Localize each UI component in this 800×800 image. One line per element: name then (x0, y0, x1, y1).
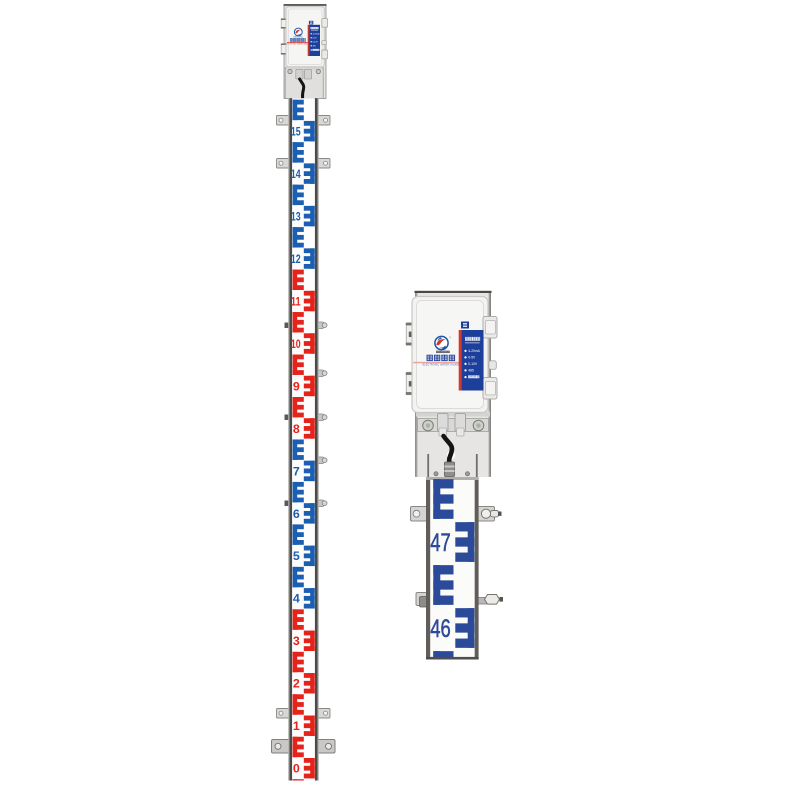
svg-text:0-10V: 0-10V (313, 42, 319, 44)
svg-text:5: 5 (293, 549, 300, 563)
svg-text:7: 7 (293, 464, 300, 478)
svg-text:ELECTRONIC WATER GAUGE: ELECTRONIC WATER GAUGE (285, 43, 311, 46)
svg-text:1: 1 (293, 719, 300, 733)
svg-text:4-20mA: 4-20mA (468, 349, 480, 353)
svg-text:0-10V: 0-10V (468, 362, 478, 366)
svg-text:485: 485 (468, 369, 474, 373)
svg-text:0: 0 (293, 762, 300, 776)
svg-text:14: 14 (291, 167, 301, 181)
svg-text:0-5V: 0-5V (468, 356, 476, 360)
svg-text:4: 4 (293, 592, 300, 606)
svg-text:3: 3 (293, 634, 300, 648)
svg-text:46: 46 (430, 616, 451, 643)
svg-text:15: 15 (291, 125, 301, 139)
svg-text:0-5V: 0-5V (313, 38, 318, 40)
svg-text:8: 8 (293, 422, 300, 436)
svg-text:ELECTRONIC WATER GAUGE: ELECTRONIC WATER GAUGE (423, 363, 460, 366)
svg-text:9: 9 (293, 379, 300, 393)
svg-text:11: 11 (291, 294, 301, 308)
svg-text:12: 12 (291, 252, 301, 266)
svg-text:47: 47 (430, 530, 451, 557)
svg-text:4-20mA: 4-20mA (313, 33, 321, 36)
svg-text:6: 6 (293, 507, 300, 521)
svg-text:13: 13 (291, 210, 301, 224)
svg-text:10: 10 (291, 337, 301, 351)
svg-text:2: 2 (293, 677, 300, 691)
